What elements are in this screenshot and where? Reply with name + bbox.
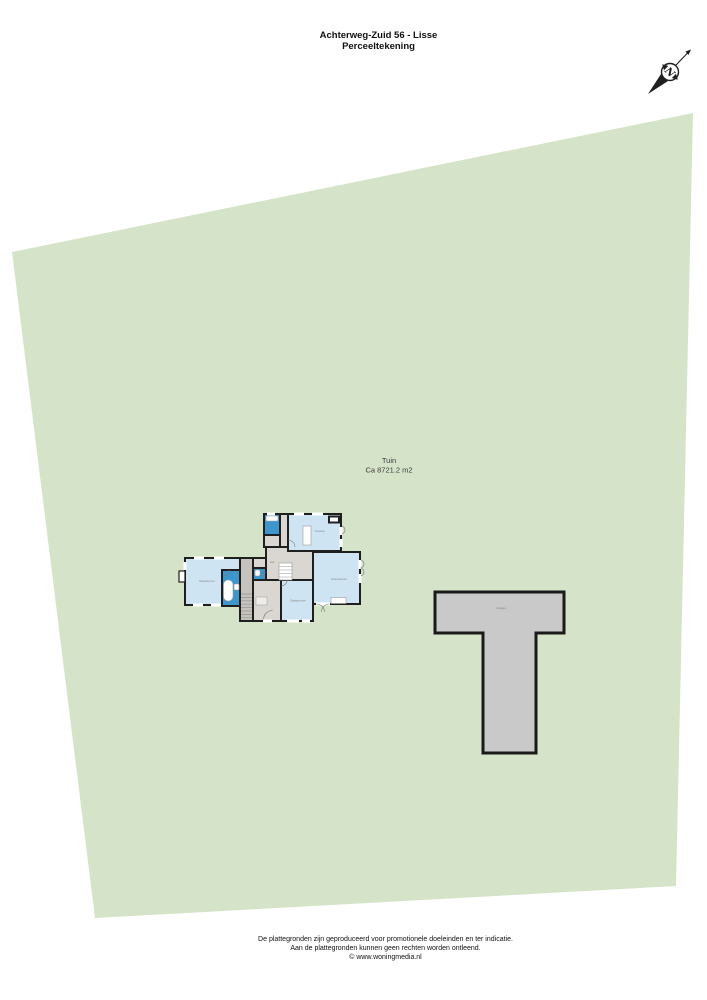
plot-polygon xyxy=(12,113,693,918)
bathroom-sink xyxy=(234,584,239,590)
living-label: Woonkamer xyxy=(331,577,347,581)
perceeltekening-page: Achterweg-Zuid 56 - Lisse Perceeltekenin… xyxy=(0,0,707,1000)
plot-area-label: Ca 8721.2 m2 xyxy=(365,466,412,475)
bedroom-mid-label: Slaapkamer xyxy=(290,599,306,603)
room-staircase xyxy=(240,558,253,621)
footer-disclaimer: De plattegronden zijn geproduceerd voor … xyxy=(0,935,707,962)
toilet-1-sink xyxy=(266,516,278,521)
room-hall-top xyxy=(280,514,288,547)
toilet-2-fixture xyxy=(255,570,260,576)
kitchen-island xyxy=(303,526,311,545)
plot-label: Tuin xyxy=(382,456,396,465)
room-utility xyxy=(264,535,280,547)
north-compass-icon: N xyxy=(648,50,691,95)
outbuilding-label: Garage xyxy=(496,606,506,610)
hall-label: Hal xyxy=(270,560,275,564)
bay-window xyxy=(179,571,185,582)
footer-line-1: De plattegronden zijn geproduceerd voor … xyxy=(64,935,707,944)
living-sideboard xyxy=(331,598,346,604)
bedroom-left-label: Slaapkamer xyxy=(199,579,215,583)
site-plan-canvas: Tuin Ca 8721.2 m2 xyxy=(0,0,707,1000)
staircase-flight xyxy=(279,563,292,580)
footer-line-2: Aan de plattegronden kunnen geen rechten… xyxy=(64,944,707,953)
footer-copyright: © www.woningmedia.nl xyxy=(64,953,707,962)
kitchen-appliance-front xyxy=(330,518,338,522)
bathtub xyxy=(224,580,234,601)
kitchen-label: Keuken xyxy=(315,529,326,533)
hall-closet xyxy=(256,597,267,605)
